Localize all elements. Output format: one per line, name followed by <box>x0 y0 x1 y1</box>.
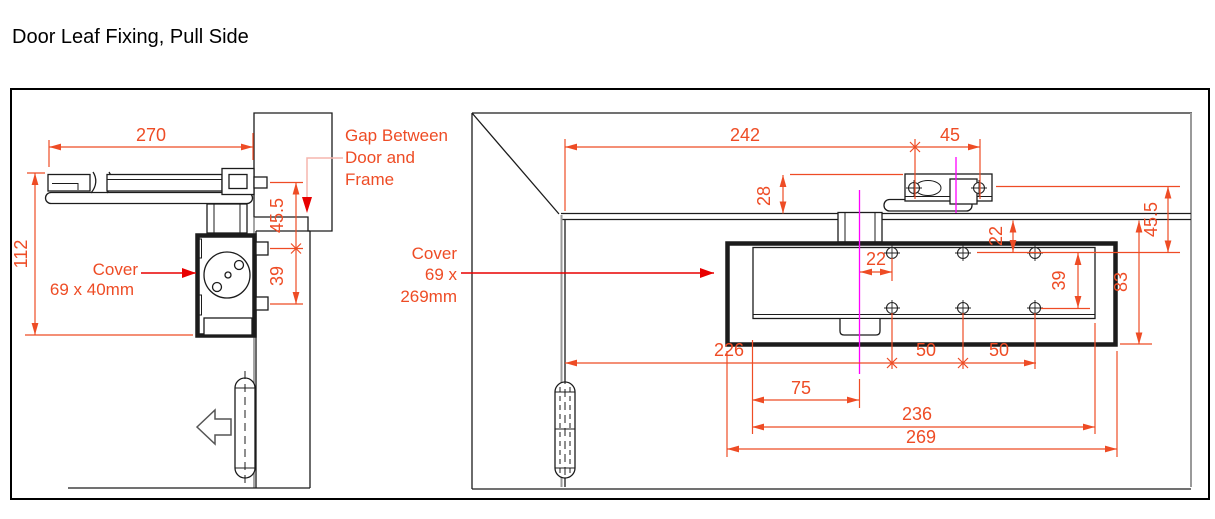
dim-242: 242 <box>730 125 760 145</box>
cover-label-line2: 69 x <box>425 265 458 284</box>
frame-fixing-pin <box>254 177 267 188</box>
dim-269: 269 <box>906 427 936 447</box>
spindle-block <box>207 204 247 233</box>
technical-drawing-canvas: 270 112 45.5 39 Cover 69 x 40mm Gap Betw… <box>0 0 1215 519</box>
cover-label-line3: 269mm <box>400 287 457 306</box>
dim-39-right: 39 <box>1049 270 1069 290</box>
cover-label-line2: 69 x 40mm <box>50 280 134 299</box>
gap-label-line1: Gap Between <box>345 126 448 145</box>
dim-45: 45 <box>940 125 960 145</box>
door-closer-installation-drawing: Door Leaf Fixing, Pull Side <box>0 0 1215 519</box>
cover-label-line1: Cover <box>93 260 139 279</box>
dim-226: 226 <box>714 340 744 360</box>
dim-50-a: 50 <box>916 340 936 360</box>
dim-75: 75 <box>791 378 811 398</box>
gap-label-line3: Frame <box>345 170 394 189</box>
body-plate <box>753 248 1095 319</box>
door-hinge-elevation <box>555 376 575 484</box>
dim-45-5-right: 45.5 <box>1141 202 1161 237</box>
left-cover-label: Cover 69 x 40mm <box>50 260 196 299</box>
end-cap <box>204 318 252 335</box>
dim-236: 236 <box>902 404 932 424</box>
left-view-plan-section: 270 112 45.5 39 Cover 69 x 40mm Gap Betw… <box>11 113 448 488</box>
fixing-lug-top <box>256 242 268 255</box>
dim-270: 270 <box>136 125 166 145</box>
dim-83: 83 <box>1111 272 1131 292</box>
fixing-lug-bottom <box>256 297 268 310</box>
right-cover-label: Cover 69 x 269mm <box>400 244 714 306</box>
dim-22-vertical: 22 <box>986 226 1006 246</box>
gap-label-line2: Door and <box>345 148 415 167</box>
dim-39-left: 39 <box>267 266 287 286</box>
arm-shoe-bracket <box>884 174 992 211</box>
closer-arm <box>46 169 268 204</box>
dim-22-horizontal: 22 <box>866 249 886 269</box>
door-hinge <box>235 371 255 486</box>
opening-direction-arrow-icon <box>197 410 231 444</box>
closer-body <box>198 204 269 336</box>
dim-50-b: 50 <box>989 340 1009 360</box>
right-view-elevation: 242 45 28 45.5 22 22 39 83 226 50 50 75 … <box>400 113 1192 489</box>
arm-connector-block <box>950 179 977 204</box>
dim-28: 28 <box>754 186 774 206</box>
dim-45-5-left: 45.5 <box>267 198 287 233</box>
cover-label-line1: Cover <box>412 244 458 263</box>
dim-112: 112 <box>11 240 31 269</box>
